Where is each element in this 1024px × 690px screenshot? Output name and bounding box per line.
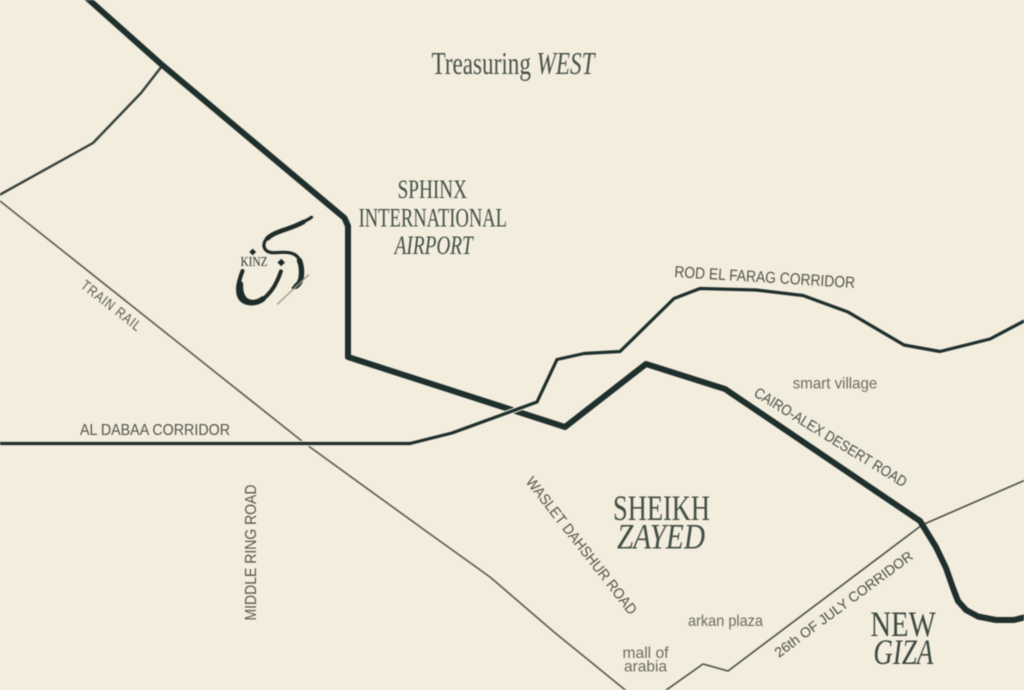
svg-text:MIDDLE RING ROAD: MIDDLE RING ROAD: [243, 485, 260, 621]
svg-text:SPHINX: SPHINX: [398, 174, 467, 204]
svg-text:AIRPORT: AIRPORT: [393, 230, 474, 260]
svg-text:AL DABAA CORRIDOR: AL DABAA CORRIDOR: [80, 422, 230, 439]
svg-text:GIZA: GIZA: [873, 632, 934, 672]
svg-text:KINZ: KINZ: [241, 255, 268, 270]
svg-text:INTERNATIONAL: INTERNATIONAL: [359, 203, 507, 233]
svg-text:arabia: arabia: [624, 659, 667, 676]
svg-text:ZAYED: ZAYED: [617, 517, 705, 557]
svg-text:smart village: smart village: [793, 376, 878, 393]
svg-text:Treasuring WEST: Treasuring WEST: [432, 45, 597, 81]
svg-text:arkan plaza: arkan plaza: [688, 613, 763, 630]
